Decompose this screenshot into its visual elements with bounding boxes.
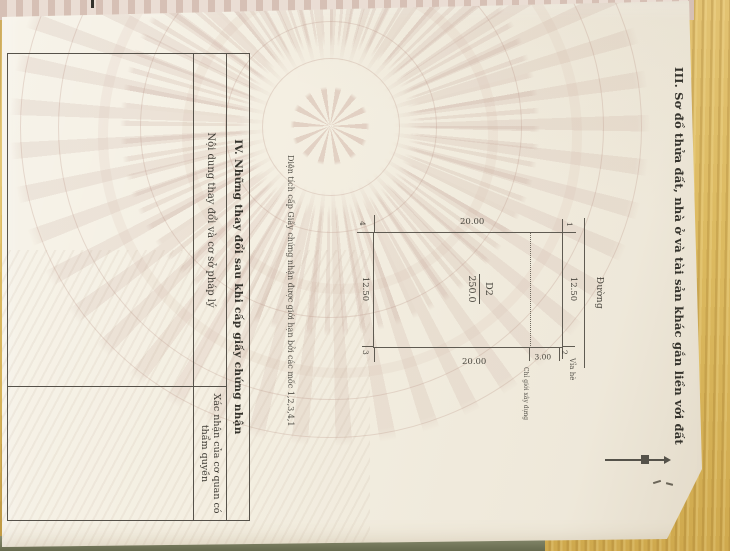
edge-extension [357, 232, 374, 233]
registration-tick-mark [91, 0, 94, 8]
edge-extension [562, 219, 563, 232]
section-iii-heading: III. Sơ đồ thửa đất, nhà ở và tài sản kh… [672, 67, 686, 397]
right-dimension: 20.00 [462, 357, 498, 367]
building-line-label: Chỉ giới xây dựng [522, 367, 529, 420]
road-edge-line [584, 218, 585, 368]
diagram-note: Diện tích cấp Giấy chứng nhận được giới … [286, 155, 295, 435]
north-arrow-icon [603, 453, 671, 467]
parcel-fraction-bar [479, 274, 480, 304]
corner-number-2: 2 [560, 350, 569, 355]
parcel-area: 250.0 [466, 232, 477, 346]
corner-number-1: 1 [565, 222, 574, 227]
corner-number-3: 3 [361, 350, 370, 355]
column-header-content-change: Nội dung thay đổi và cơ sở pháp lý [194, 54, 227, 387]
document-content: III. Sơ đồ thửa đất, nhà ở và tài sản kh… [1, 3, 701, 549]
setback-tick [529, 347, 530, 361]
north-arrow-line [605, 459, 667, 461]
edge-extension [362, 346, 374, 347]
table-header-row: Nội dung thay đổi và cơ sở pháp lý Xác n… [193, 54, 227, 520]
corner-number-4: 4 [358, 221, 367, 226]
edge-extension [563, 346, 575, 347]
photo-scene: III. Sơ đồ thửa đất, nhà ở và tài sản kh… [0, 0, 730, 551]
setback-dimension: 3.00 [535, 353, 561, 362]
road-label: Đường [594, 218, 604, 368]
top-dimension: 12.50 [568, 269, 578, 309]
left-dimension: 20.00 [460, 217, 496, 227]
bottom-dimension: 12.50 [360, 269, 370, 309]
section-iv-table: IV. Những thay đổi sau khi cấp giấy chứn… [7, 53, 250, 521]
building-setback-dashed-line [530, 233, 531, 346]
table-column-divider [8, 386, 194, 387]
certificate-paper: III. Sơ đồ thửa đất, nhà ở và tài sản kh… [0, 0, 730, 551]
sidewalk-label: Vỉa hè [568, 358, 576, 380]
parcel-id: D2 [483, 232, 494, 346]
north-arrow-tail [641, 455, 649, 464]
edge-extension [563, 232, 576, 233]
pen-mark [653, 480, 661, 484]
pen-mark [666, 482, 673, 486]
edge-extension [374, 347, 375, 362]
column-header-authority: Xác nhận của cơ quan có thẩm quyền [194, 387, 227, 520]
edge-extension [374, 215, 375, 232]
section-iv-heading: IV. Những thay đổi sau khi cấp giấy chứn… [226, 54, 249, 520]
